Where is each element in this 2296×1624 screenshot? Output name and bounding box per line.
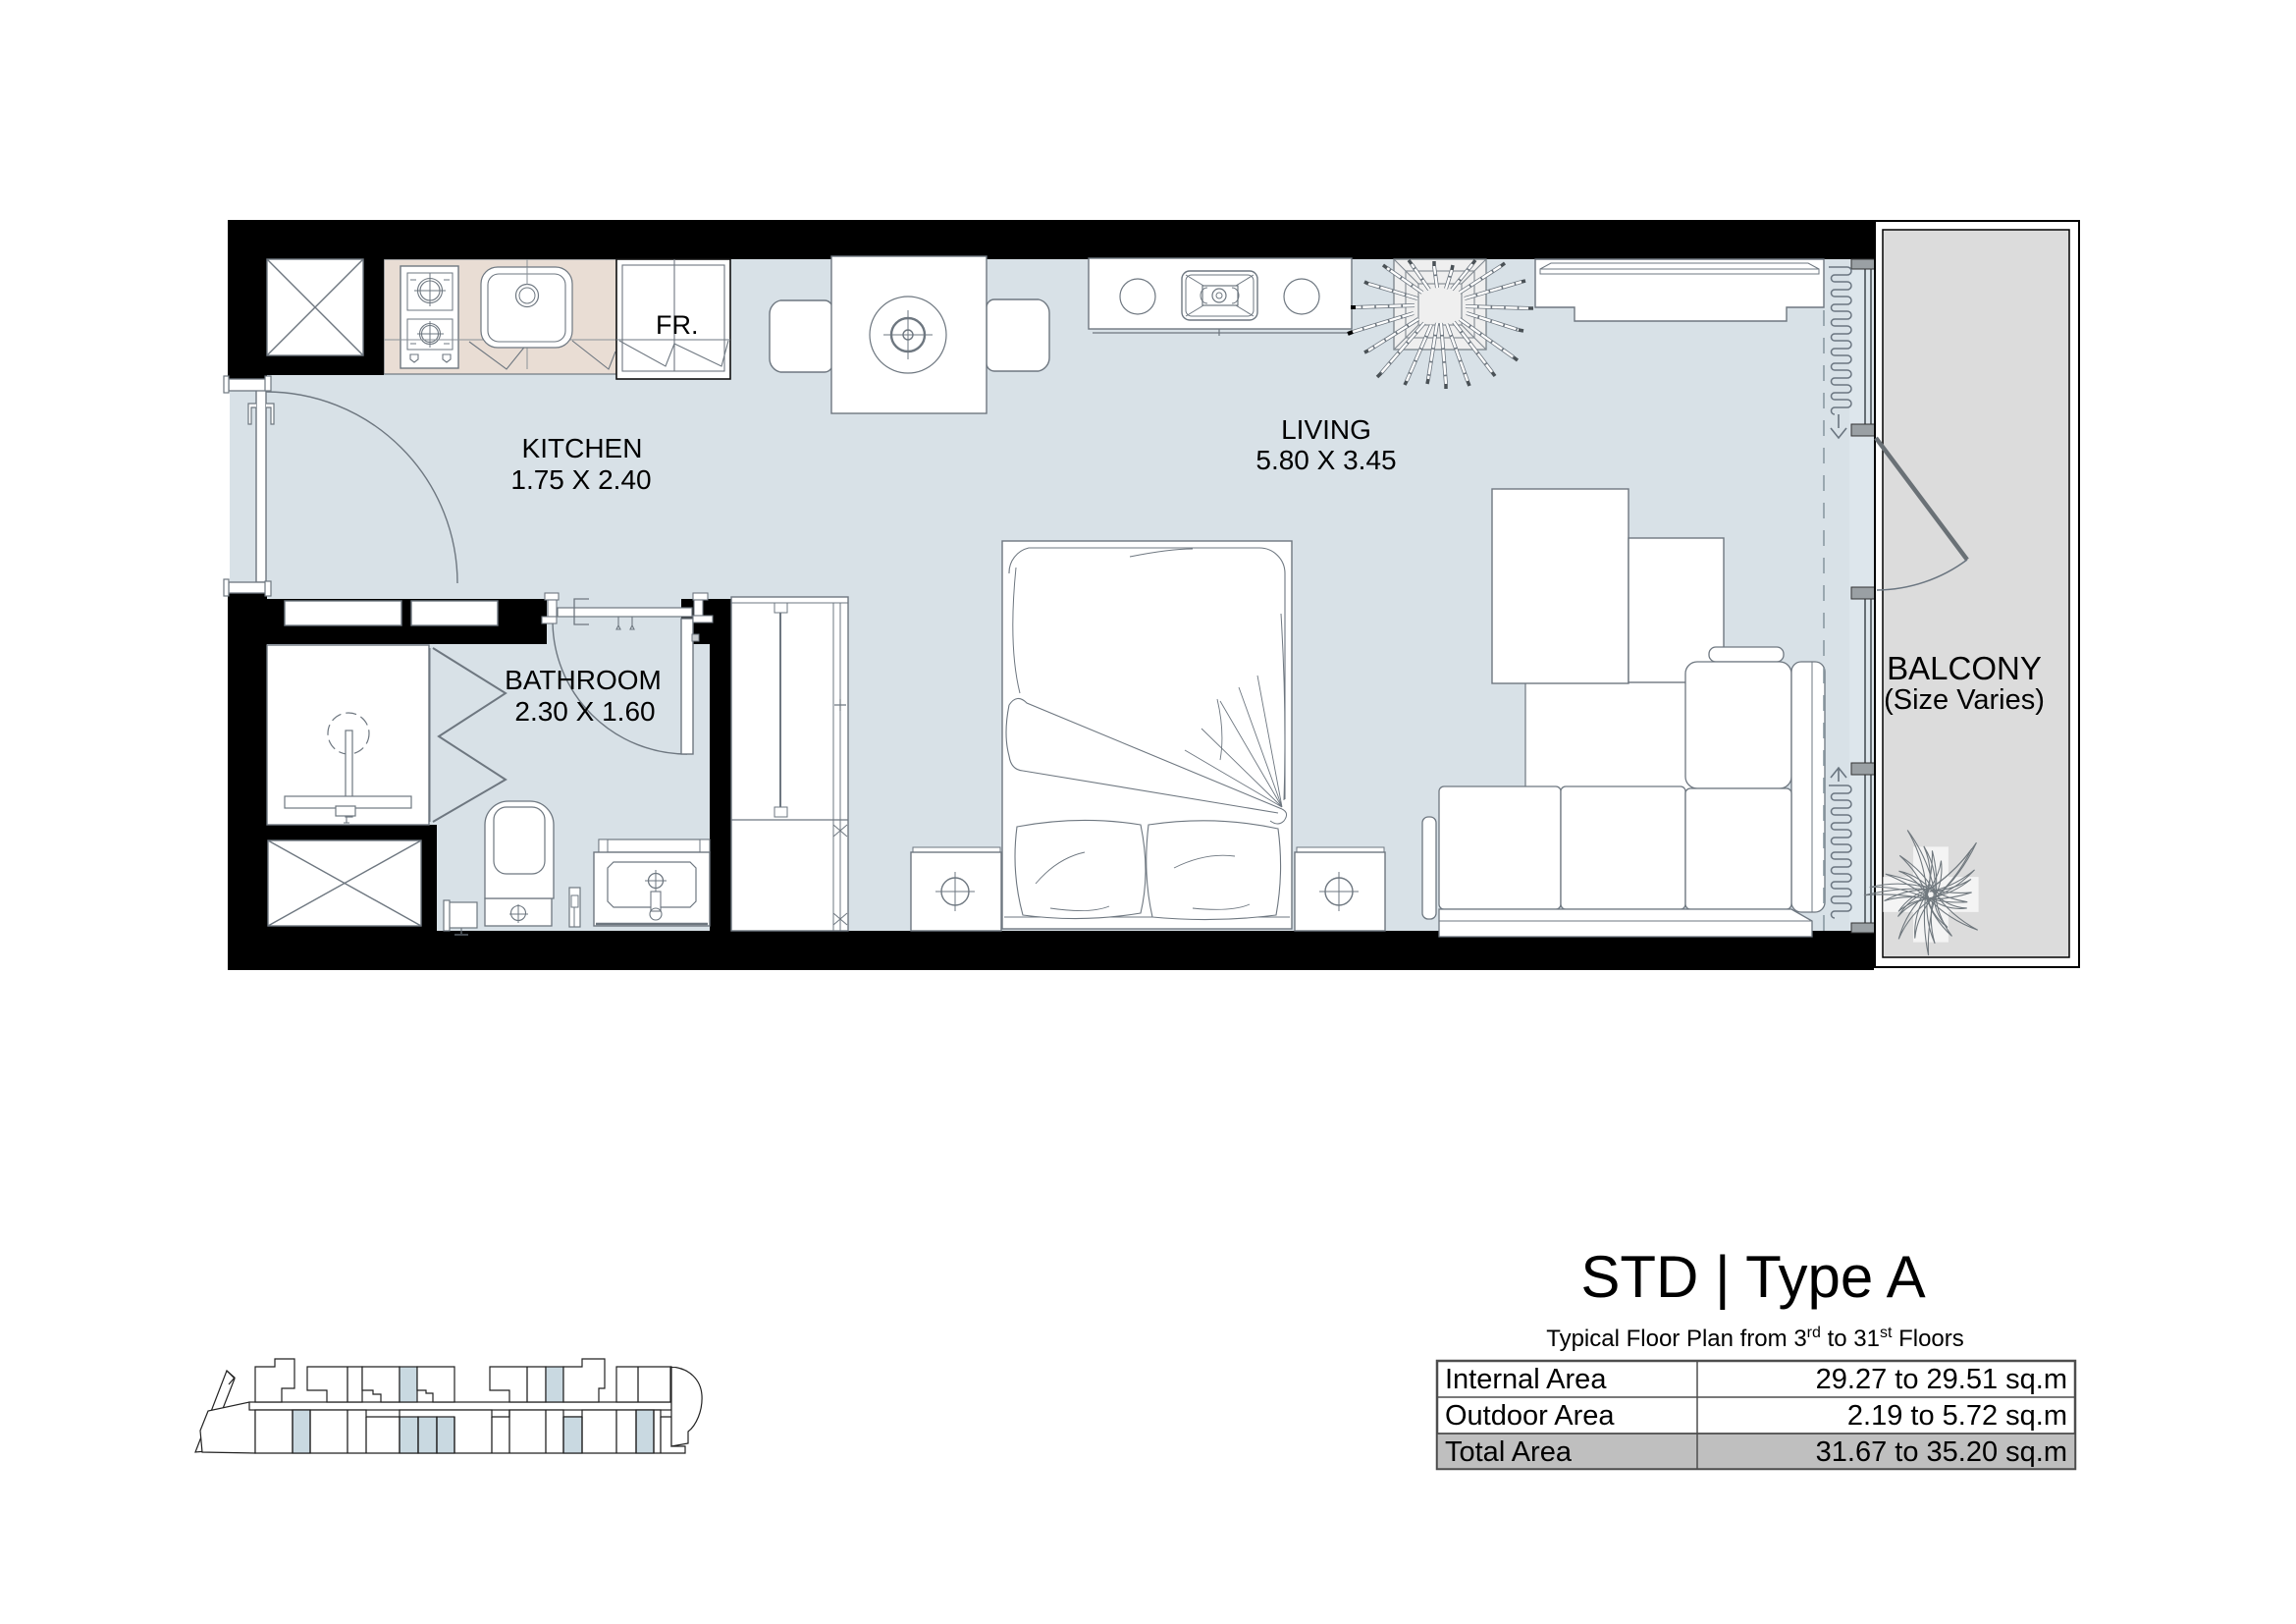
svg-text:KITCHEN: KITCHEN — [522, 433, 643, 463]
svg-text:2.30 X 1.60: 2.30 X 1.60 — [514, 696, 655, 727]
svg-text:31.67 to 35.20 sq.m: 31.67 to 35.20 sq.m — [1816, 1436, 2067, 1468]
svg-text:Typical Floor Plan from 3rd to: Typical Floor Plan from 3rd to 31st Floo… — [1546, 1325, 1964, 1352]
svg-text:LIVING: LIVING — [1281, 414, 1371, 445]
svg-text:BATHROOM: BATHROOM — [505, 665, 662, 695]
svg-text:Internal Area: Internal Area — [1445, 1364, 1607, 1395]
svg-text:Total Area: Total Area — [1445, 1436, 1573, 1468]
svg-text:Outdoor Area: Outdoor Area — [1445, 1400, 1615, 1432]
svg-text:29.27 to 29.51 sq.m: 29.27 to 29.51 sq.m — [1816, 1364, 2067, 1395]
svg-text:BALCONY: BALCONY — [1887, 650, 2042, 686]
svg-text:STD | Type A: STD | Type A — [1580, 1244, 1925, 1310]
svg-text:5.80 X 3.45: 5.80 X 3.45 — [1255, 445, 1396, 475]
svg-text:(Size Varies): (Size Varies) — [1884, 684, 2045, 716]
svg-text:FR.: FR. — [656, 310, 699, 340]
svg-text:2.19 to 5.72 sq.m: 2.19 to 5.72 sq.m — [1847, 1400, 2067, 1432]
svg-text:1.75 X 2.40: 1.75 X 2.40 — [510, 464, 651, 495]
